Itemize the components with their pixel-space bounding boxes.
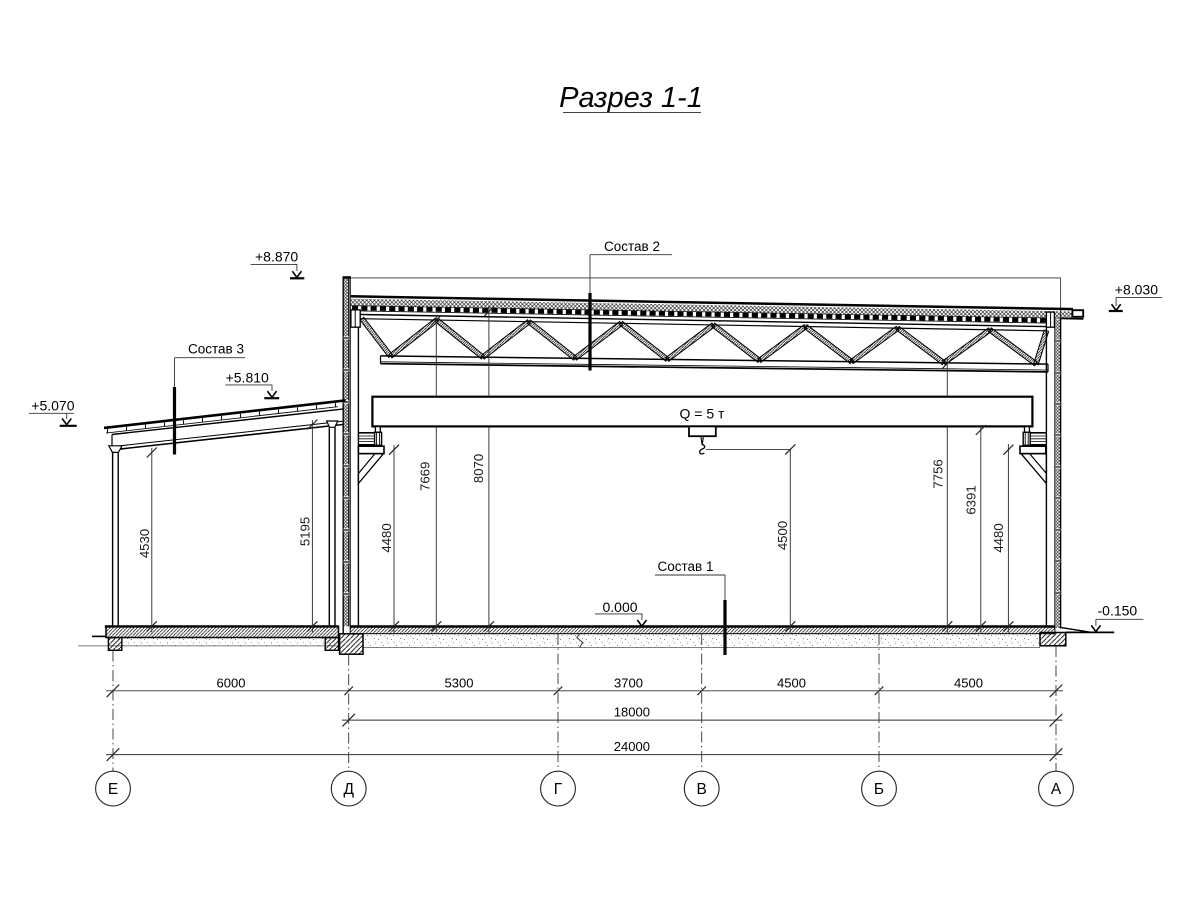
svg-text:+5.070: +5.070 bbox=[31, 398, 74, 414]
svg-text:4480: 4480 bbox=[379, 523, 394, 552]
svg-text:Состав 3: Состав 3 bbox=[188, 342, 244, 357]
svg-text:7669: 7669 bbox=[417, 462, 432, 491]
svg-text:+8.870: +8.870 bbox=[255, 248, 298, 264]
svg-text:6391: 6391 bbox=[963, 485, 978, 514]
svg-text:-0.150: -0.150 bbox=[1098, 603, 1138, 619]
svg-text:Г: Г bbox=[554, 781, 563, 798]
svg-text:4530: 4530 bbox=[137, 529, 152, 558]
svg-text:Б: Б bbox=[874, 781, 884, 798]
svg-text:6000: 6000 bbox=[217, 676, 246, 691]
svg-text:4500: 4500 bbox=[777, 676, 806, 691]
svg-text:4480: 4480 bbox=[991, 523, 1006, 552]
svg-text:Состав 1: Состав 1 bbox=[658, 559, 714, 574]
svg-text:0.000: 0.000 bbox=[603, 599, 638, 615]
svg-text:3700: 3700 bbox=[614, 676, 643, 691]
svg-text:Состав 2: Состав 2 bbox=[604, 239, 660, 254]
svg-text:А: А bbox=[1051, 781, 1062, 798]
svg-text:Q = 5 т: Q = 5 т bbox=[680, 406, 726, 422]
svg-text:+5.810: +5.810 bbox=[226, 369, 269, 385]
svg-text:5300: 5300 bbox=[445, 676, 474, 691]
svg-text:+8.030: +8.030 bbox=[1115, 281, 1158, 297]
svg-text:18000: 18000 bbox=[614, 705, 650, 720]
svg-text:Д: Д bbox=[343, 781, 354, 798]
svg-text:5195: 5195 bbox=[297, 517, 312, 546]
svg-text:В: В bbox=[697, 781, 707, 798]
svg-text:7756: 7756 bbox=[931, 459, 946, 488]
svg-text:Е: Е bbox=[108, 781, 118, 798]
svg-text:4500: 4500 bbox=[775, 521, 790, 550]
svg-text:24000: 24000 bbox=[614, 739, 650, 754]
svg-text:Разрез 1-1: Разрез 1-1 bbox=[559, 82, 703, 114]
svg-text:4500: 4500 bbox=[954, 676, 983, 691]
svg-text:8070: 8070 bbox=[471, 454, 486, 483]
